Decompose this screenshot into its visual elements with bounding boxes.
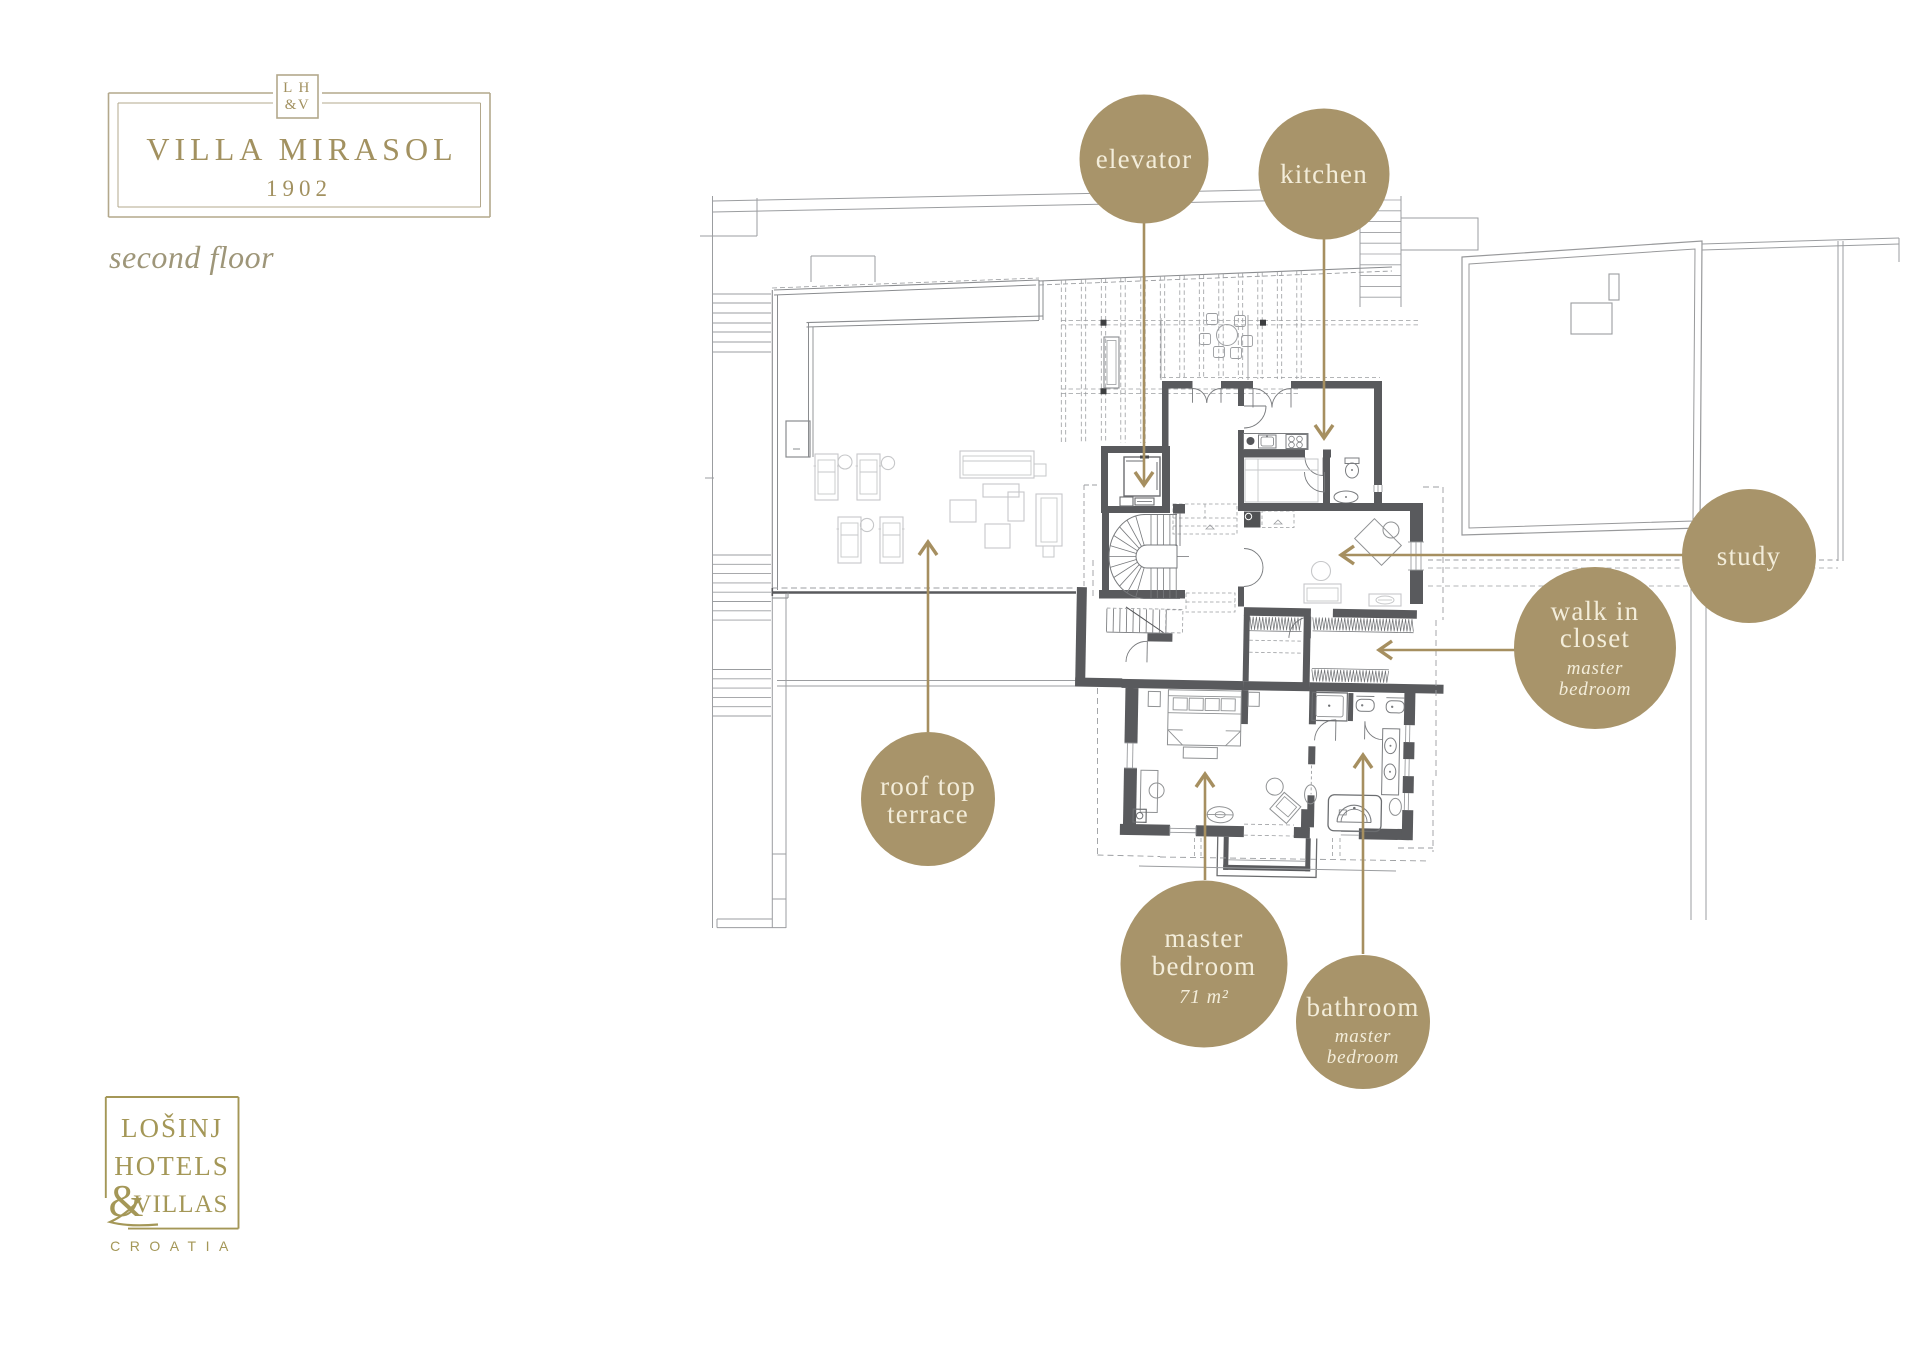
svg-text:bathroom: bathroom: [1306, 992, 1419, 1022]
svg-text:terrace: terrace: [887, 799, 969, 829]
svg-text:VILLAS: VILLAS: [134, 1191, 229, 1218]
svg-text:roof top: roof top: [880, 771, 976, 801]
svg-text:study: study: [1717, 541, 1782, 571]
svg-text:bedroom: bedroom: [1152, 951, 1256, 981]
svg-text:elevator: elevator: [1096, 144, 1193, 174]
svg-text:&V: &V: [285, 97, 311, 113]
svg-text:LOŠINJ: LOŠINJ: [121, 1113, 223, 1143]
svg-text:master: master: [1567, 658, 1624, 679]
svg-text:bedroom: bedroom: [1327, 1047, 1399, 1068]
svg-text:second floor: second floor: [109, 239, 274, 275]
svg-text:VILLA MIRASOL: VILLA MIRASOL: [146, 131, 457, 167]
svg-text:master: master: [1335, 1026, 1392, 1047]
svg-text:master: master: [1164, 923, 1243, 953]
svg-text:1902: 1902: [266, 176, 332, 201]
svg-text:71 m²: 71 m²: [1179, 986, 1229, 1008]
svg-text:L H: L H: [283, 80, 312, 96]
svg-text:CROATIA: CROATIA: [110, 1238, 238, 1254]
svg-text:closet: closet: [1560, 623, 1630, 653]
svg-text:kitchen: kitchen: [1280, 159, 1368, 189]
svg-text:walk in: walk in: [1551, 596, 1640, 626]
svg-text:bedroom: bedroom: [1559, 679, 1631, 700]
